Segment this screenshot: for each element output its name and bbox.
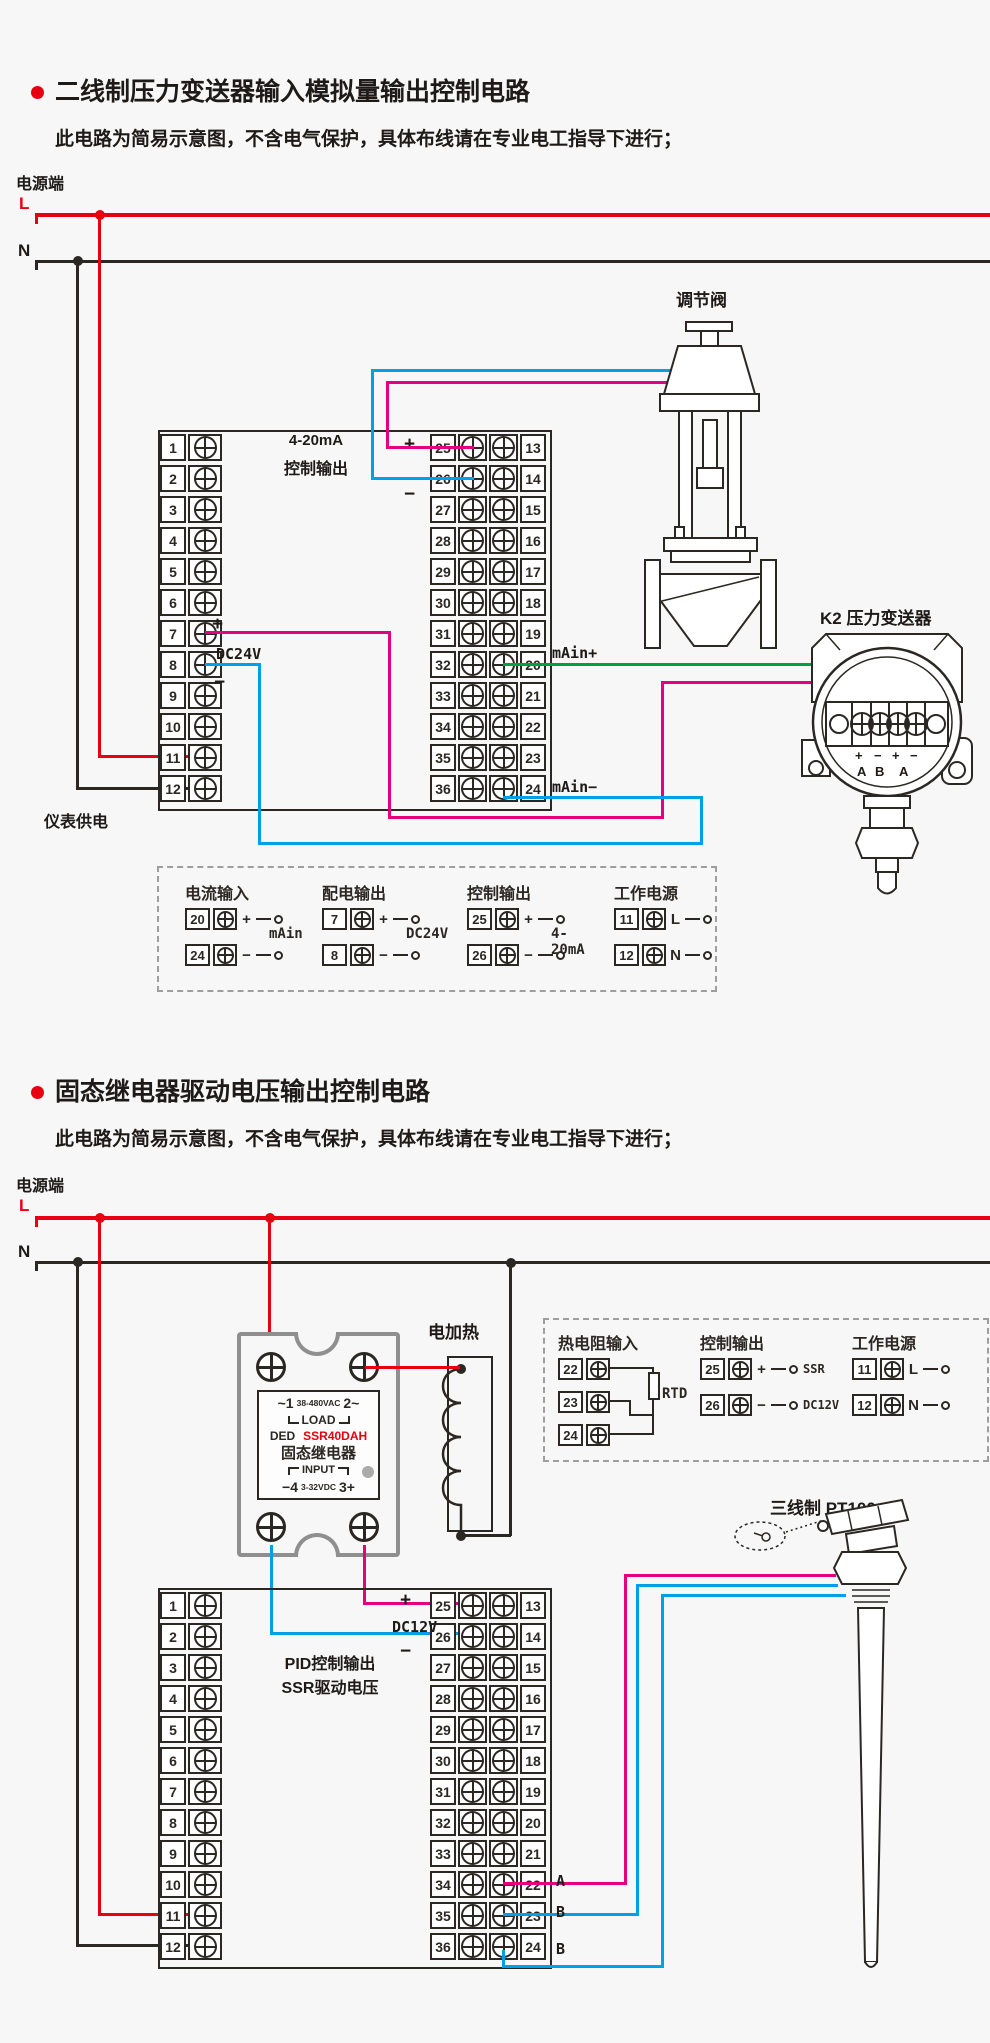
polarity-sign: N [669,947,682,964]
terminal-number: 36 [430,775,456,802]
section2-power-label: 电源端 [16,1172,64,1196]
terminal-screw-box [642,908,666,930]
terminal-row: 2 [160,1621,222,1652]
terminal-screw-box [489,1623,518,1650]
wire-stub [771,1404,786,1406]
terminal-screw-box [188,1902,222,1929]
terminal-strip: 2513261427152816291730183119322033213422… [430,1590,546,1964]
screw-icon [646,947,663,964]
screw-icon [492,467,515,490]
wire-l-to-11 [98,215,101,757]
wire-label-b2: B [556,1940,565,1958]
terminal-number: 29 [430,558,456,585]
connection-circle-icon [789,1401,798,1410]
legend-group-title: 电流输入 [185,880,249,904]
terminal-screw-box [458,1871,487,1898]
terminal-row: 7 [160,1776,222,1807]
terminal-number: 29 [430,1716,456,1743]
pt100-sensor-drawing [720,1485,990,1995]
polarity-sign: − [240,947,253,964]
wire-stub [256,918,271,920]
terminal-number: 19 [520,1778,546,1805]
terminal-number: 18 [520,1747,546,1774]
terminal-screw-box [458,1747,487,1774]
screw-icon [492,591,515,614]
signal-tag: SSR [803,1362,825,1376]
screw-icon [461,1935,484,1958]
legend-mid-label: DC24V [406,926,448,942]
terminal-screw-box [350,944,374,966]
wire-n-to-12 [76,261,79,789]
ssr-brand: DED [270,1430,295,1442]
terminal-number: 24 [558,1424,583,1446]
wire-label-a: A [556,1872,565,1890]
wiring-diagram-page: 二线制压力变送器输入模拟量输出控制电路 此电路为简易示意图，不含电气保护，具体布… [0,0,990,2043]
screw-icon [194,1842,217,1865]
terminal-row: 5 [160,556,222,587]
load-bracket-right [339,1416,350,1424]
terminal-row: 3018 [430,587,546,618]
terminal-screw-box [458,589,487,616]
terminal-screw-box [880,1358,904,1380]
terminal-number: 25 [467,908,492,930]
terminal-number: 2 [160,465,186,492]
terminal-screw-box [458,1933,487,1960]
load-bracket-left [288,1416,299,1424]
screw-icon [461,591,484,614]
terminal-row: 12 [160,1931,222,1962]
terminal-row: 8 [160,1807,222,1838]
screw-icon [492,715,515,738]
legend-group-title: 热电阻输入 [558,1330,638,1354]
terminal-row: 2513 [430,1590,546,1621]
polarity-sign: L [907,1361,920,1378]
terminal-number: 25 [700,1358,725,1380]
legend-mid-label: 4-20mA [551,926,585,958]
terminal-number: 5 [160,1716,186,1743]
control-valve-drawing [615,315,815,660]
legend-row: 26−DC12V [700,1394,839,1416]
screw-icon [492,1842,515,1865]
terminal-number: 6 [160,1747,186,1774]
screw-icon [492,560,515,583]
terminal-number: 35 [430,744,456,771]
terminal-row: 9 [160,1838,222,1869]
wire-dc24-mag [205,631,390,634]
screw-icon [461,1749,484,1772]
screw-icon [590,1361,607,1378]
terminal-row: 2816 [430,525,546,556]
terminal-screw-box [458,1716,487,1743]
rtd-wire [609,1433,654,1435]
valve-label: 调节阀 [676,286,727,311]
section1-n-line-tick [35,260,38,270]
pid-label-2: SSR驱动电压 [248,1674,412,1698]
terminal-row: 10 [160,1869,222,1900]
terminal-number: 23 [558,1391,583,1413]
terminal-row: 3 [160,1652,222,1683]
section1-bullet-icon [31,86,44,99]
section2-n-line-tick [35,1261,38,1271]
connection-circle-icon [411,951,420,960]
terminal-screw-box [458,1778,487,1805]
terminal-number: 20 [185,908,210,930]
rtd-wire [609,1367,654,1369]
terminal-number: 7 [160,620,186,647]
terminal-screw-box [586,1358,610,1380]
screw-icon [194,746,217,769]
screw-icon [194,1811,217,1834]
terminal-screw-box [350,908,374,930]
screw-icon [492,529,515,552]
terminal-screw-box [489,1592,518,1619]
terminal-row: 1 [160,1590,222,1621]
terminal-screw-box [458,1902,487,1929]
legend-row: 24− [185,944,283,966]
terminal-number: 13 [520,434,546,461]
screw-icon [461,1811,484,1834]
main-plus-label: mAin+ [552,644,597,662]
polarity-sign: − [522,947,535,964]
terminal-number: 9 [160,682,186,709]
ssr-dc-plus: 3+ [339,1480,355,1494]
ssr-acv: 38-480VAC [297,1399,341,1408]
terminal-screw-box [489,1840,518,1867]
terminal-screw-box [489,1716,518,1743]
terminal-number: 1 [160,1592,186,1619]
terminal-number: 24 [185,944,210,966]
terminal-number: 11 [852,1358,877,1380]
terminal-row: 3523 [430,742,546,773]
terminal-row: 2917 [430,556,546,587]
pid-label-1: PID控制输出 [248,1650,412,1674]
wire-main-minus [258,842,702,845]
terminal-screw-box [489,1685,518,1712]
terminal-screw-box [188,1592,222,1619]
terminal-row: 2715 [430,494,546,525]
wire-stub [685,918,700,920]
wire-valve-cyan [371,369,374,480]
terminal-row: 11 [160,742,222,773]
terminal-number: 33 [430,1840,456,1867]
screw-icon [461,715,484,738]
terminal-screw-box [188,1840,222,1867]
terminal-screw-box [188,589,222,616]
connection-circle-icon [789,1365,798,1374]
section2-title: 固态继电器驱动电压输出控制电路 [55,1072,430,1108]
terminal-row: 11 [160,1900,222,1931]
connection-circle-icon [274,951,283,960]
terminal-screw-box [489,527,518,554]
terminal-number: 33 [430,682,456,709]
terminal-screw-box [489,465,518,492]
polarity-sign: N [907,1397,920,1414]
legend-group-control-output: 控制输出25+SSR26−DC12V [700,1330,764,1354]
terminal-number: 19 [520,620,546,647]
screw-icon [354,911,371,928]
terminal-number: 13 [520,1592,546,1619]
screw-icon [194,591,217,614]
terminal-screw-box [489,713,518,740]
terminal-number: 16 [520,1685,546,1712]
terminal-screw-box [489,744,518,771]
terminal-screw-box [188,1716,222,1743]
screw-icon [492,622,515,645]
screw-icon [492,684,515,707]
terminal-row: 5 [160,1714,222,1745]
legend-group-rtd-input: 热电阻输入222324RTD [558,1330,638,1354]
legend-row: 25+SSR [700,1358,825,1380]
xmtr-sign: + [892,748,900,763]
section2-l-line [35,1216,990,1220]
terminal-row: 3018 [430,1745,546,1776]
screw-icon [461,1842,484,1865]
terminal-screw-box [489,1809,518,1836]
wire-stub [538,918,553,920]
ssr-indicator-dot [362,1466,374,1478]
terminal-row: 3119 [430,1776,546,1807]
legend-mid-label: mAin [269,926,303,942]
main-minus-label: mAin− [552,778,597,796]
screw-icon [194,1935,217,1958]
terminal-screw-box [880,1394,904,1416]
screw-icon [461,1656,484,1679]
legend-group-current-input: 电流输入20+24−mAin [185,880,249,904]
terminal-number: 34 [430,1871,456,1898]
terminal-row: 3321 [430,680,546,711]
wire-stub [393,954,408,956]
polarity-sign: + [377,911,390,928]
legend-row: 23 [558,1391,610,1413]
section1-line-n-label: N [18,241,30,261]
screw-icon [732,1361,749,1378]
terminal-number: 11 [160,1902,186,1929]
wire-l-to-11 [98,1216,101,1915]
screw-icon [194,1749,217,1772]
ssr-model: SSR40DAH [303,1430,367,1442]
wire-valve-mag [386,446,474,449]
wire-main-minus [258,663,261,844]
wire-label-b1: B [556,1903,565,1921]
terminal-number: 3 [160,1654,186,1681]
terminal-number: 36 [430,1933,456,1960]
screw-icon [461,1904,484,1927]
terminal-screw-box [458,1654,487,1681]
terminal-screw-box [188,775,222,802]
section2-bullet-icon [31,1086,44,1099]
screw-icon [194,1904,217,1927]
screw-icon [461,746,484,769]
terminal-number: 15 [520,496,546,523]
terminal-number: 11 [160,744,186,771]
screw-icon [194,436,217,459]
terminal-screw-box [188,1654,222,1681]
terminal-screw-box [458,713,487,740]
screw-icon [492,1749,515,1772]
terminal-row: 2816 [430,1683,546,1714]
terminal-number: 28 [430,1685,456,1712]
legend-row: 11L [614,908,712,930]
screw-icon [646,911,663,928]
wire-main-minus [205,663,260,666]
screw-icon [884,1361,901,1378]
screw-icon [461,1873,484,1896]
terminal-number: 14 [520,1623,546,1650]
legend-row: 12N [614,944,712,966]
screw-icon [194,1594,217,1617]
terminal-screw-box [586,1391,610,1413]
terminal-number: 10 [160,713,186,740]
screw-icon [461,529,484,552]
wire-n-to-12 [76,1261,79,1946]
screw-icon [732,1397,749,1414]
terminal-screw-box [188,1933,222,1960]
ssr-ac1: ~1 [278,1396,294,1410]
legend-row: 8− [322,944,420,966]
dc24v-minus: − [214,672,225,694]
terminal-row: 3422 [430,711,546,742]
terminal-number: 15 [520,1654,546,1681]
legend-group-title: 工作电源 [614,880,678,904]
terminal-row: 3 [160,494,222,525]
terminal-screw-box [188,434,222,461]
terminal-number: 4 [160,527,186,554]
screw-icon [884,1397,901,1414]
terminal-screw-box [458,620,487,647]
screw-icon [354,947,371,964]
terminal-screw-box [495,908,519,930]
legend-group-title: 控制输出 [700,1330,764,1354]
legend-group-title: 配电输出 [322,880,386,904]
section2-line-l-label: L [19,1196,29,1216]
legend-group-title: 控制输出 [467,880,531,904]
ssr-name: 固态继电器 [281,1446,356,1461]
xmtr-term: A [857,764,866,779]
terminal-screw-box [188,1809,222,1836]
terminal-screw-box [489,558,518,585]
terminal-screw-box [213,944,237,966]
wire-pt100-b2 [661,1594,664,1968]
terminal-number: 10 [160,1871,186,1898]
terminal-number: 28 [430,527,456,554]
terminal-column-left: 123456789101112 [160,1590,224,1964]
legend-row: 11L [852,1358,950,1380]
section2-subtitle: 此电路为简易示意图，不含电气保护，具体布线请在专业电工指导下进行； [55,1124,682,1151]
ssr-ac2: 2~ [343,1396,359,1410]
terminal-row: 3220 [430,1807,546,1838]
screw-icon [194,529,217,552]
connection-circle-icon [274,915,283,924]
dc24v-label: DC24V [216,645,261,663]
screw-icon [194,467,217,490]
wire-pt100-b1 [636,1584,639,1916]
terminal-screw-box [213,908,237,930]
section1-l-line-tick [35,213,38,224]
screw-icon [194,1873,217,1896]
legend-row: 12N [852,1394,950,1416]
output-label-2: 控制输出 [240,455,392,479]
terminal-number: 17 [520,1716,546,1743]
screw-icon [217,911,234,928]
screw-icon [492,746,515,769]
screw-icon [590,1427,607,1444]
legend-mid-label: RTD [662,1386,687,1402]
terminal-number: 20 [520,1809,546,1836]
terminal-screw-box [728,1358,752,1380]
terminal-number: 12 [614,944,639,966]
ssr-screw-4 [256,1512,286,1542]
screw-icon [217,947,234,964]
rtd-resistor-icon [648,1372,660,1400]
screw-icon [499,911,516,928]
terminal-screw-box [188,496,222,523]
polarity-sign: − [755,1397,768,1414]
screw-icon [194,777,217,800]
screw-icon [461,1594,484,1617]
terminal-row: 2917 [430,1714,546,1745]
terminal-screw-box [188,1871,222,1898]
terminal-screw-box [489,1778,518,1805]
xmtr-sign: − [874,748,882,763]
terminal-screw-box [188,527,222,554]
terminal-screw-box [489,1654,518,1681]
terminal-number: 3 [160,496,186,523]
screw-icon [194,498,217,521]
terminal-number: 27 [430,1654,456,1681]
terminal-screw-box [642,944,666,966]
section1-line-l-label: L [19,194,29,214]
connection-circle-icon [941,1365,950,1374]
input-bracket-left [288,1467,299,1475]
wire-stub [923,1368,938,1370]
terminal-screw-box [188,1778,222,1805]
xmtr-term: B [875,764,884,779]
section1-title: 二线制压力变送器输入模拟量输出控制电路 [55,72,530,108]
terminal-number: 11 [614,908,639,930]
screw-icon [461,498,484,521]
terminal-number: 26 [467,944,492,966]
legend-row: 22 [558,1358,610,1380]
xmtr-sign: + [855,748,863,763]
terminal-number: 30 [430,589,456,616]
terminal-number: 2 [160,1623,186,1650]
terminal-screw-box [495,944,519,966]
section1-supply-label: 仪表供电 [44,808,108,832]
terminal-screw-box [458,744,487,771]
wire-pt100-b2 [502,1965,664,1968]
terminal-row: 2715 [430,1652,546,1683]
terminal-screw-box [188,744,222,771]
xmtr-sign: − [910,748,918,763]
terminal-screw-box [458,1685,487,1712]
terminal-number: 6 [160,589,186,616]
signal-tag: DC12V [803,1398,839,1412]
terminal-screw-box [489,682,518,709]
legend-row: 24 [558,1424,610,1446]
heater-coil-icon [420,1350,520,1550]
terminal-number: 32 [430,651,456,678]
terminal-number: 30 [430,1747,456,1774]
terminal-screw-box [728,1394,752,1416]
legend-group-power-output: 配电输出7+8−DC24V [322,880,386,904]
terminal-number: 1 [160,434,186,461]
terminal-screw-box [458,1623,487,1650]
terminal-number: 12 [852,1394,877,1416]
ssr-screw-3 [349,1512,379,1542]
terminal-number: 16 [520,527,546,554]
pressure-transmitter-drawing [795,625,985,910]
terminal-screw-box [489,589,518,616]
